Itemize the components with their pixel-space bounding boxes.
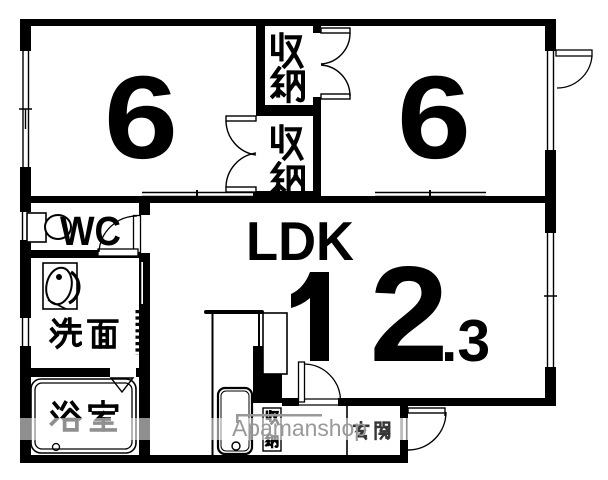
svg-text:6: 6 bbox=[397, 52, 471, 184]
svg-text:2: 2 bbox=[370, 238, 449, 390]
svg-text:LDK: LDK bbox=[246, 210, 354, 272]
svg-text:Apamanshop: Apamanshop bbox=[232, 415, 367, 441]
svg-text:.3: .3 bbox=[441, 308, 490, 374]
svg-text:6: 6 bbox=[104, 52, 178, 184]
svg-text:WC: WC bbox=[60, 208, 121, 254]
